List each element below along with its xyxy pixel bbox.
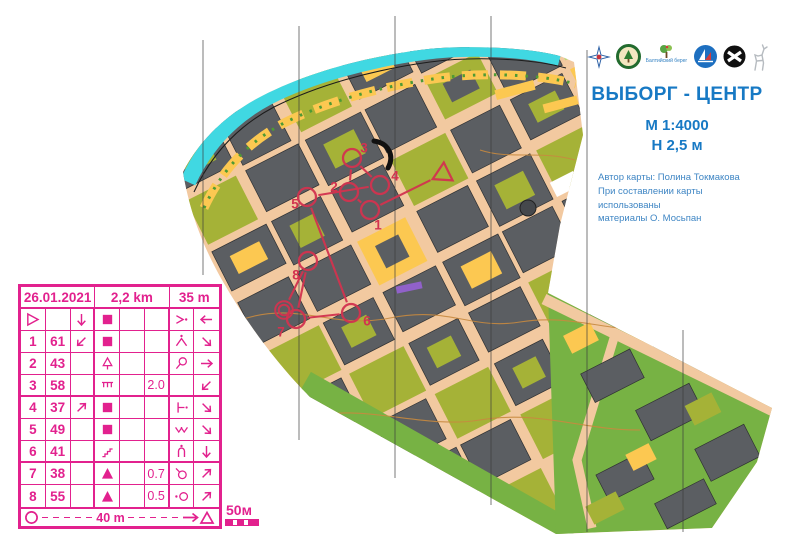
cd-cell-h [194,485,219,507]
stairs-icon [99,443,116,460]
cd-cell-g [170,463,195,484]
cd-cell-f [145,309,170,330]
control-number-2: 2 [330,180,338,195]
compass-rose-icon [586,44,612,70]
square-icon [99,399,116,416]
card-row-4: 437 [21,397,219,419]
card-row-6: 641 [21,441,219,463]
course-leg-2 [350,169,351,180]
square-icon [99,421,116,438]
map-scale: М 1:4000 [584,117,770,134]
control-descriptions-card: 26.01.2021 2,2 km 35 m 1612433582.043754… [18,284,222,529]
scalebar-label: 50м [226,502,270,518]
cd-cell-e [120,441,145,461]
arrow-ne-icon [198,488,215,505]
gray-animal-logo-icon [751,44,769,72]
cd-cell-d [95,463,120,484]
cd-cell-g [170,375,195,395]
course-date: 26.01.2021 [21,287,95,307]
control-number-7: 7 [277,325,285,340]
arrow-left-icon [198,311,215,328]
cd-cell-f: 0.7 [145,463,170,484]
cd-cell-h [194,419,219,440]
cd-cell-h [194,463,219,484]
cd-cell-b: 41 [46,441,71,461]
cd-cell-f: 0.5 [145,485,170,507]
cd-cell-h [194,353,219,374]
t-junction-icon [173,399,190,416]
map-title: ВЫБОРГ - ЦЕНТР [584,84,770,106]
course-length: 2,2 km [95,287,169,307]
map-credits: Автор карты: Полина Токмакова При состав… [584,171,764,226]
cd-cell-b: 38 [46,463,71,484]
black-circle-logo-icon [722,44,747,69]
cd-cell-h [194,331,219,352]
control-number-5: 5 [291,197,299,212]
canopy-icon [99,377,116,394]
cd-cell-h [194,397,219,418]
start-triangle-icon [24,311,41,328]
cd-cell-a: 6 [21,441,46,461]
cd-cell-h [194,309,219,330]
baltiysky-bereg-label: Балтийский берег [645,59,689,65]
cd-cell-b: 55 [46,485,71,507]
cd-cell-g [170,353,195,374]
square-icon [99,311,116,328]
cd-cell-b: 58 [46,375,71,395]
green-emblem-icon [616,44,641,69]
cd-cell-e [120,375,145,395]
circle-tick-icon [173,465,190,482]
arrow-sw-icon [73,333,90,350]
cd-cell-d [95,397,120,418]
card-row-1: 161 [21,331,219,353]
cd-cell-a: 2 [21,353,46,374]
cd-cell-g [170,309,195,330]
cd-cell-h [194,375,219,395]
cd-cell-c [71,485,96,507]
cd-cell-a [21,309,46,330]
cd-cell-c [71,397,96,418]
cd-cell-f [145,331,170,352]
baltiysky-bereg-icon: Балтийский берег [645,44,689,65]
funnel-dash-right [128,517,179,519]
cd-cell-a: 1 [21,331,46,352]
arrow-sw-icon [198,377,215,394]
cd-cell-e [120,485,145,507]
scalebar: 50м [226,502,270,525]
card-row-8: 8550.5 [21,485,219,507]
card-row-3: 3582.0 [21,375,219,397]
card-row-2: 243 [21,353,219,375]
cd-cell-c [71,309,96,330]
card-row-5: 549 [21,419,219,441]
cd-cell-g [170,485,195,507]
cd-cell-d [95,441,120,461]
card-row-7: 7380.7 [21,463,219,485]
card-row-start [21,309,219,331]
cd-cell-h [194,441,219,461]
cd-cell-d [95,485,120,507]
cd-cell-c [71,419,96,440]
credit-line-materials-2: материалы О. Мосьпан [598,212,764,226]
cd-cell-d [95,353,120,374]
cd-cell-d [95,375,120,395]
cd-cell-a: 3 [21,375,46,395]
cd-cell-e [120,331,145,352]
cd-cell-g [170,419,195,440]
triangle-filled-icon [99,465,116,482]
arrow-down-icon [73,311,90,328]
card-body: 1612433582.04375496417380.78550.5 [21,309,219,507]
cd-cell-e [120,463,145,484]
junction-dot-icon [173,311,190,328]
arrow-se-icon [198,421,215,438]
crossing-dot-icon [173,333,190,350]
tree-icon [99,355,116,372]
finish-funnel-row: 40 m [21,507,219,526]
cd-cell-e [120,397,145,418]
credit-line-author: Автор карты: Полина Токмакова [598,171,764,185]
cd-cell-a: 5 [21,419,46,440]
cd-cell-g [170,397,195,418]
control-number-8: 8 [292,268,300,283]
cd-cell-f: 2.0 [145,375,170,395]
cd-cell-c [71,375,96,395]
title-block: Балтийский берег [584,44,770,226]
circle-tail-icon [173,355,190,372]
dot-circle-icon [173,488,190,505]
funnel-arrow-triangle-icon [182,510,216,525]
logos-row: Балтийский берег [584,44,770,78]
credit-line-materials-1: При составлении карты использованы [598,185,764,213]
cd-cell-e [120,419,145,440]
cd-cell-a: 7 [21,463,46,484]
arrow-ne-icon [198,465,215,482]
cd-cell-b [46,309,71,330]
control-number-6: 6 [363,314,371,329]
cd-cell-d [95,309,120,330]
funnel-distance: 40 m [96,511,125,525]
cd-cell-a: 4 [21,397,46,418]
card-header: 26.01.2021 2,2 km 35 m [21,287,219,309]
double-v-icon [173,421,190,438]
arrow-down-icon [198,443,215,460]
cd-cell-f [145,441,170,461]
course-climb: 35 m [170,287,220,307]
paved-circle-feature [520,200,536,216]
cd-cell-d [95,331,120,352]
statue-dot-icon [173,443,190,460]
control-number-4: 4 [391,169,399,184]
blue-circle-logo-icon [693,44,718,69]
cd-cell-f [145,353,170,374]
cd-cell-c [71,441,96,461]
cd-cell-c [71,463,96,484]
cd-cell-e [120,353,145,374]
cd-cell-b: 49 [46,419,71,440]
cd-cell-e [120,309,145,330]
arrow-se-icon [198,399,215,416]
funnel-dash-left [42,517,93,519]
arrow-se-icon [198,333,215,350]
square-icon [99,333,116,350]
cd-cell-f [145,397,170,418]
cd-cell-f [145,419,170,440]
page: 12345678 [0,0,789,557]
cd-cell-b: 37 [46,397,71,418]
contour-interval: Н 2,5 м [584,137,770,154]
triangle-filled-icon [99,488,116,505]
control-number-1: 1 [374,218,382,233]
cd-cell-c [71,331,96,352]
cd-cell-b: 43 [46,353,71,374]
arrow-right-icon [198,355,215,372]
cd-cell-a: 8 [21,485,46,507]
cd-cell-g [170,441,195,461]
funnel-start-circle-icon [24,510,39,525]
cd-cell-c [71,353,96,374]
arrow-ne-icon [73,399,90,416]
cd-cell-g [170,331,195,352]
control-number-3: 3 [360,141,368,156]
scalebar-bar [226,520,258,525]
cd-cell-b: 61 [46,331,71,352]
cd-cell-d [95,419,120,440]
